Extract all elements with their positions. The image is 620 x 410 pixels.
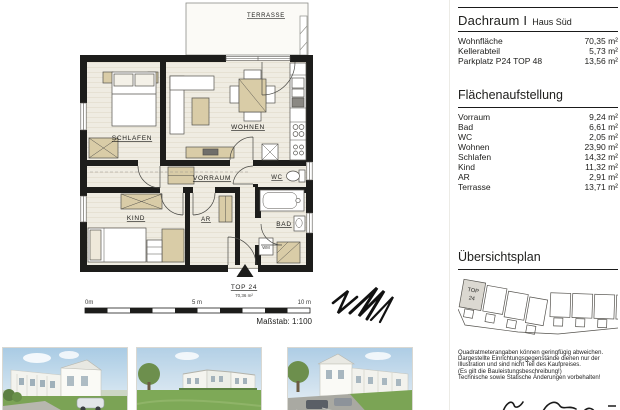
areas-table: Vorraum 9,24 m² Bad 6,61 m² WC 2,05 m² W… bbox=[458, 112, 618, 192]
area-value: 9,24 m² bbox=[589, 112, 618, 122]
terrace-area: TERRASSE bbox=[186, 3, 308, 55]
area-label: Kind bbox=[458, 162, 475, 172]
info-panel: Dachraum I Haus Süd Wohnfläche 70,35 m² … bbox=[458, 0, 618, 410]
room-label-vorraum: VORRAUM bbox=[193, 175, 231, 182]
page-subtitle: Haus Süd bbox=[532, 17, 572, 27]
summary-value: 13,56 m² bbox=[584, 56, 618, 66]
overview-heading-row: Übersichtsplan bbox=[458, 248, 618, 266]
unit-marker: TOP 24 70,36 m² bbox=[231, 264, 257, 298]
summary-label: Kellerabteil bbox=[458, 46, 500, 56]
summary-value: 70,35 m² bbox=[584, 36, 618, 46]
scale-five: 5 m bbox=[192, 300, 202, 306]
exterior-rendering-2 bbox=[137, 348, 261, 410]
area-row: WC 2,05 m² bbox=[458, 132, 618, 142]
area-value: 13,71 m² bbox=[584, 182, 618, 192]
disclaimer-line: Technische sowie Statische Änderungen vo… bbox=[458, 375, 618, 381]
unit-top-label: TOP 24 bbox=[231, 284, 257, 291]
area-row: Wohnen 23,90 m² bbox=[458, 142, 618, 152]
room-label-ar: AR bbox=[201, 217, 211, 223]
room-label-wohnen: WOHNEN bbox=[231, 124, 265, 131]
rule-under-title bbox=[458, 31, 618, 32]
area-value: 6,61 m² bbox=[589, 122, 618, 132]
panel-divider bbox=[449, 0, 450, 410]
area-label: Bad bbox=[458, 122, 473, 132]
area-label: WC bbox=[458, 132, 472, 142]
unit-area-label: 70,36 m² bbox=[235, 293, 253, 298]
unit-title: Dachraum I Haus Süd bbox=[458, 13, 618, 28]
summary-row: Parkplatz P24 TOP 48 13,56 m² bbox=[458, 56, 618, 66]
floorplan-datasheet-page: TERRASSE bbox=[0, 0, 620, 410]
rule-under-overview-heading bbox=[458, 269, 618, 270]
area-value: 23,90 m² bbox=[584, 142, 618, 152]
area-value: 11,32 m² bbox=[585, 162, 618, 172]
wm-label: WM bbox=[262, 245, 270, 250]
area-label: Wohnen bbox=[458, 142, 490, 152]
floorplan-drawing: TERRASSE bbox=[0, 0, 450, 340]
area-row: Schlafen 14,32 m² bbox=[458, 152, 618, 162]
area-value: 14,32 m² bbox=[584, 152, 618, 162]
page-title: Dachraum I bbox=[458, 13, 527, 28]
brand-logo-partial bbox=[458, 397, 618, 410]
area-row: Terrasse 13,71 m² bbox=[458, 182, 618, 192]
area-row: AR 2,91 m² bbox=[458, 172, 618, 182]
rule-under-areas-heading bbox=[458, 107, 618, 108]
areas-heading-row: Flächenaufstellung bbox=[458, 86, 618, 104]
exterior-rendering-3 bbox=[288, 348, 412, 410]
areas-heading: Flächenaufstellung bbox=[458, 88, 563, 102]
siteplan-unit-number: 24 bbox=[468, 295, 475, 302]
area-row: Kind 11,32 m² bbox=[458, 162, 618, 172]
room-label-wc: WC bbox=[271, 175, 282, 181]
exterior-rendering-1 bbox=[3, 348, 127, 410]
area-row: Bad 6,61 m² bbox=[458, 122, 618, 132]
area-value: 2,91 m² bbox=[589, 172, 618, 182]
room-label-terrasse: TERRASSE bbox=[247, 13, 285, 19]
summary-label: Parkplatz P24 TOP 48 bbox=[458, 56, 542, 66]
area-label: Schlafen bbox=[458, 152, 491, 162]
site-plan: TOP 24 bbox=[458, 275, 618, 339]
overview-heading: Übersichtsplan bbox=[458, 250, 541, 264]
room-label-schlafen: SCHLAFEN bbox=[112, 135, 152, 142]
summary-row: Wohnfläche 70,35 m² bbox=[458, 36, 618, 46]
area-label: AR bbox=[458, 172, 470, 182]
rule-top bbox=[458, 7, 618, 8]
area-value: 2,05 m² bbox=[589, 132, 618, 142]
scale-caption: Maßstab: 1:100 bbox=[256, 317, 312, 326]
room-label-bad: BAD bbox=[276, 221, 291, 228]
area-row: Vorraum 9,24 m² bbox=[458, 112, 618, 122]
room-label-kind: KIND bbox=[127, 215, 145, 222]
scale-zero: 0m bbox=[85, 300, 93, 306]
area-label: Vorraum bbox=[458, 112, 490, 122]
summary-value: 5,73 m² bbox=[589, 46, 618, 56]
summary-row: Kellerabteil 5,73 m² bbox=[458, 46, 618, 56]
scale-bar: 0m 5 m 10 m Maßstab: 1:100 bbox=[85, 300, 313, 326]
summary-label: Wohnfläche bbox=[458, 36, 503, 46]
disclaimer-text: Quadratmeterangaben können geringfügig a… bbox=[458, 350, 618, 381]
area-label: Terrasse bbox=[458, 182, 491, 192]
signature-stamp bbox=[333, 288, 393, 322]
summary-table: Wohnfläche 70,35 m² Kellerabteil 5,73 m²… bbox=[458, 36, 618, 66]
scale-ten: 10 m bbox=[298, 300, 311, 306]
